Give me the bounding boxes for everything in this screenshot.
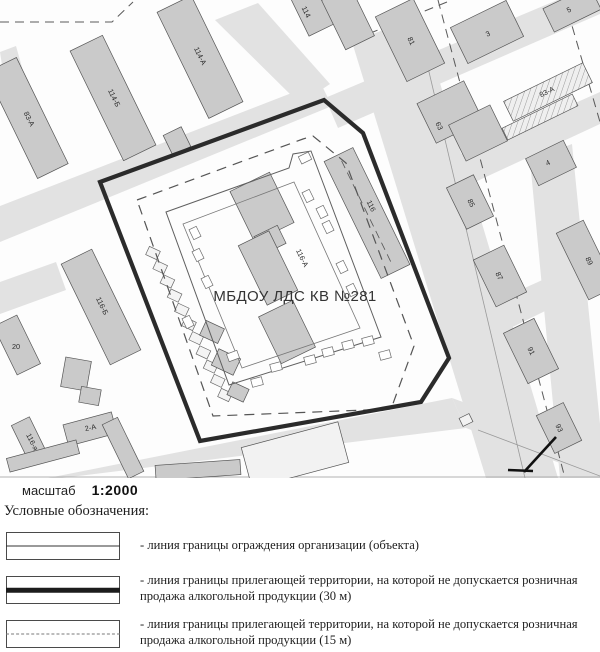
play-structure bbox=[362, 336, 375, 347]
building bbox=[230, 172, 294, 242]
play-structure bbox=[316, 205, 328, 218]
building bbox=[61, 357, 92, 391]
play-structure bbox=[322, 220, 334, 233]
play-structure bbox=[322, 347, 335, 358]
legend-title: Условные обозначения: bbox=[4, 503, 149, 520]
play-structure bbox=[342, 340, 355, 351]
street-dashed-line bbox=[0, 2, 133, 22]
play-structure bbox=[189, 226, 201, 239]
play-structure bbox=[201, 275, 213, 288]
play-structure bbox=[336, 260, 348, 273]
play-structure bbox=[302, 189, 314, 202]
play-structure bbox=[298, 152, 311, 164]
garage-box bbox=[196, 346, 211, 359]
corner-check-mark bbox=[508, 470, 533, 471]
site-plan-page: 83-А114-Б114-А114813583-А634858789919311… bbox=[0, 0, 600, 652]
scale-row: масштаб1:2000 bbox=[22, 482, 138, 498]
building bbox=[0, 315, 41, 375]
map-area: 83-А114-Б114-А114813583-А634858789919311… bbox=[0, 0, 600, 478]
legend-text: - линия границы прилегающей территории, … bbox=[140, 616, 598, 648]
legend-swatch-thin-line bbox=[6, 532, 120, 560]
site-map: 83-А114-Б114-А114813583-А634858789919311… bbox=[0, 0, 600, 478]
play-structure bbox=[251, 377, 264, 388]
facility-name-label: МБДОУ ЛДС КВ №281 bbox=[213, 288, 376, 305]
building bbox=[79, 386, 101, 405]
garage-box bbox=[153, 261, 168, 274]
scale-value: 1:2000 bbox=[92, 482, 139, 498]
play-structure bbox=[270, 362, 283, 373]
dashed-line-sample bbox=[6, 634, 120, 635]
building-label: 20 bbox=[12, 342, 20, 351]
play-structure bbox=[379, 350, 392, 361]
garage-box bbox=[174, 303, 189, 316]
thick-line-sample bbox=[6, 588, 120, 593]
garage-box bbox=[146, 246, 161, 259]
scale-label: масштаб bbox=[22, 483, 76, 498]
garage-box bbox=[210, 374, 225, 387]
building bbox=[259, 300, 316, 363]
legend-text: - линия границы прилегающей территории, … bbox=[140, 572, 598, 604]
legend-swatch-thick-line bbox=[6, 576, 120, 604]
legend-swatch-dashed-line bbox=[6, 620, 120, 648]
thin-line-sample bbox=[6, 546, 120, 547]
road bbox=[0, 262, 66, 314]
building bbox=[200, 321, 225, 344]
legend-text: - линия границы ограждения организации (… bbox=[140, 537, 598, 553]
play-structure bbox=[304, 355, 317, 366]
building-label: 116-А bbox=[294, 247, 310, 268]
